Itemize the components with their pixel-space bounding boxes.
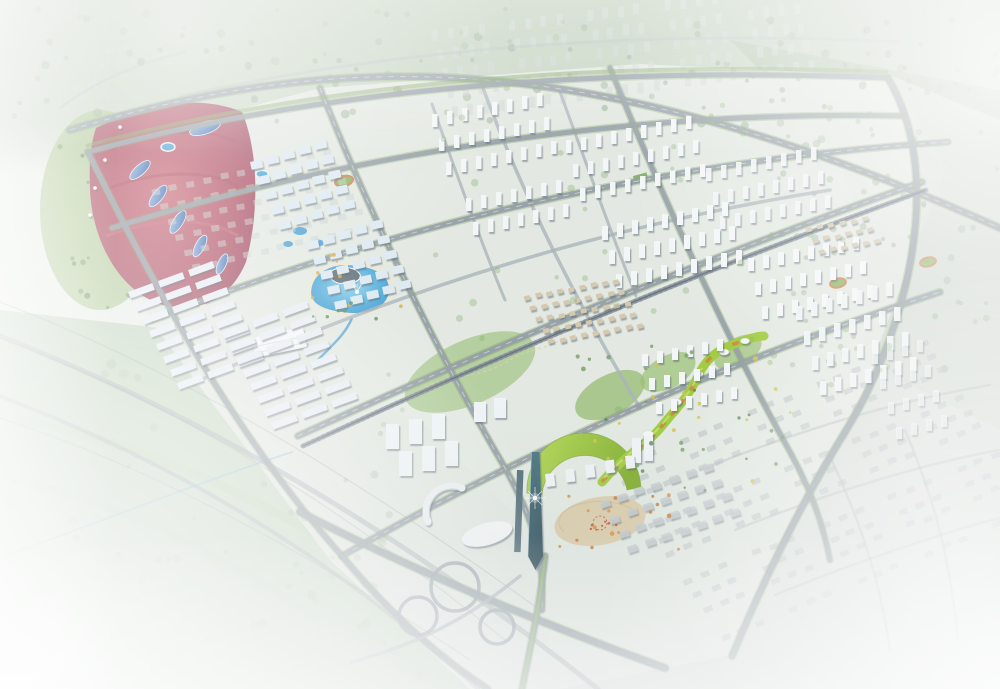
white-veil — [0, 0, 1000, 689]
atmospheric-haze — [0, 0, 1000, 689]
screenshot-root — [0, 0, 1000, 689]
aerial-rendering — [0, 0, 1000, 689]
